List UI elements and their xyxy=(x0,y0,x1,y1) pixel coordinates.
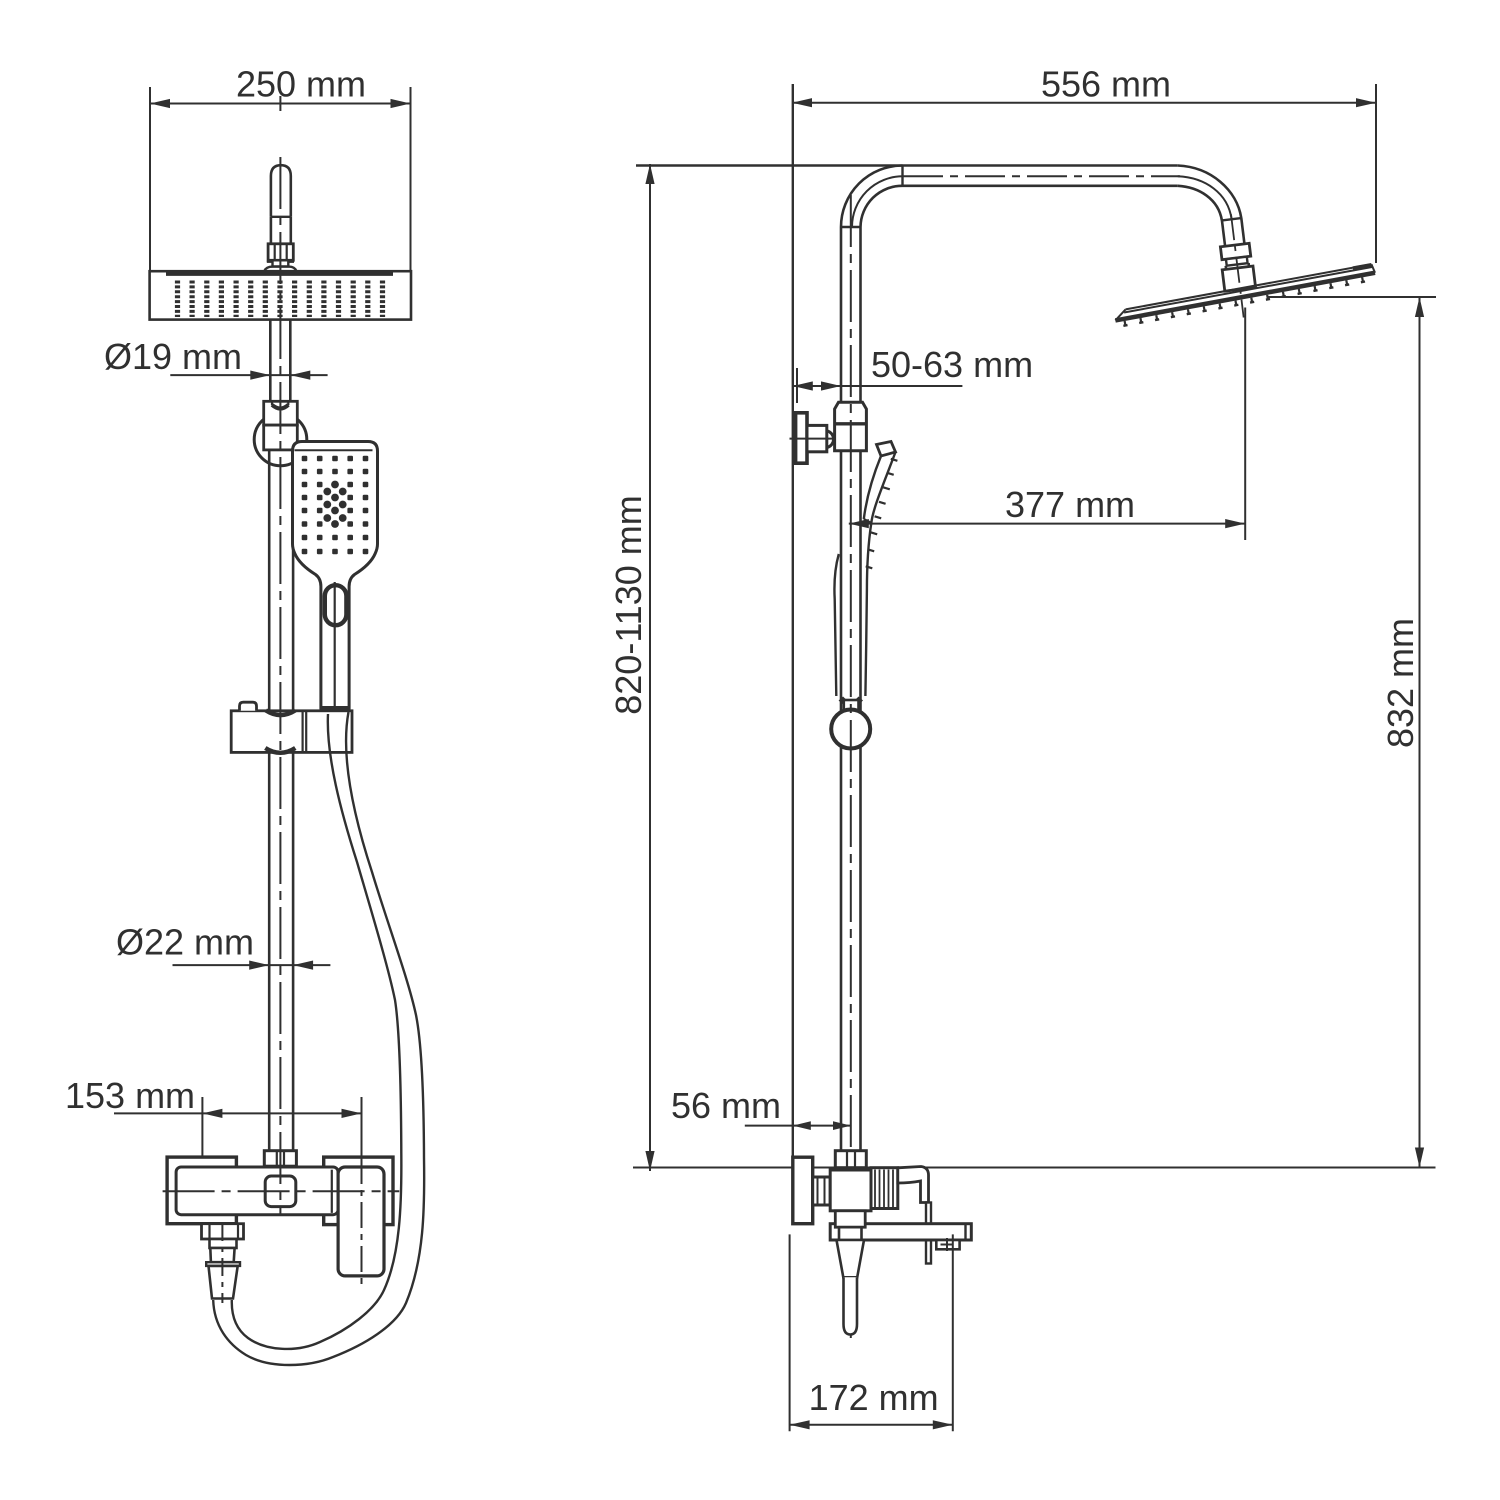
svg-text:172 mm: 172 mm xyxy=(809,1377,939,1418)
svg-text:820-1130 mm: 820-1130 mm xyxy=(608,495,649,714)
svg-text:250 mm: 250 mm xyxy=(236,64,366,105)
svg-text:50-63 mm: 50-63 mm xyxy=(871,344,1033,385)
svg-text:Ø19 mm: Ø19 mm xyxy=(104,336,242,377)
svg-text:153 mm: 153 mm xyxy=(65,1075,195,1116)
svg-text:Ø22 mm: Ø22 mm xyxy=(116,922,254,963)
svg-text:377 mm: 377 mm xyxy=(1005,484,1135,525)
svg-text:556 mm: 556 mm xyxy=(1041,64,1171,105)
svg-text:832 mm: 832 mm xyxy=(1380,618,1421,748)
svg-text:56 mm: 56 mm xyxy=(671,1085,781,1126)
